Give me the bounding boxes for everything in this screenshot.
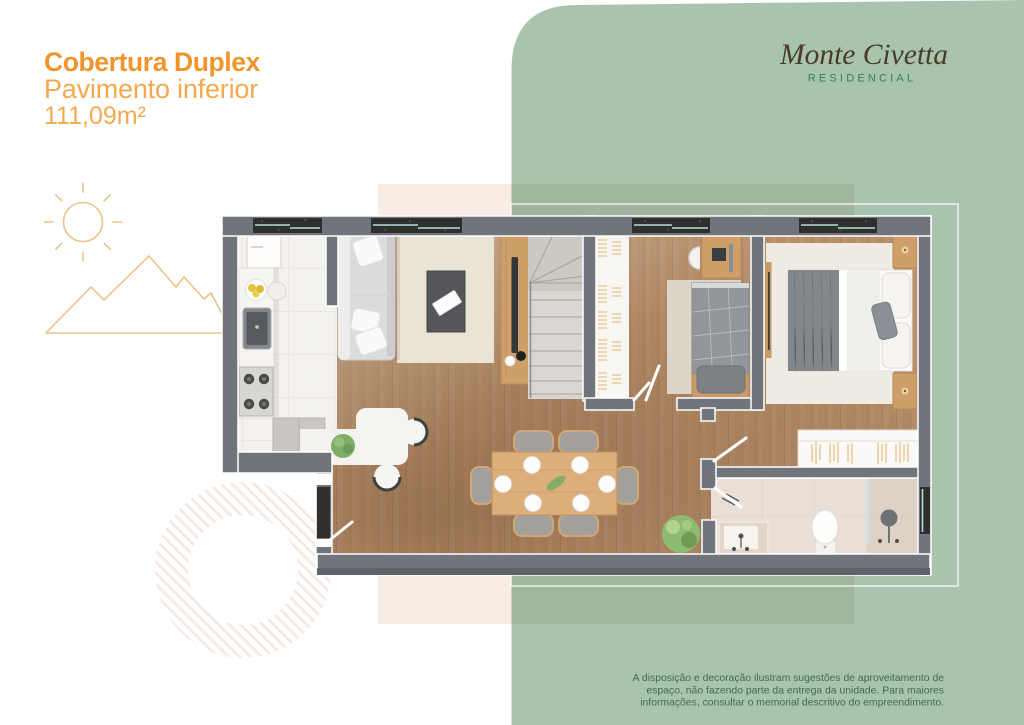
svg-text:Pavimento inferior: Pavimento inferior [44,74,258,104]
svg-text:Monte Civetta: Monte Civetta [779,39,948,71]
svg-text:A disposição e decoração ilust: A disposição e decoração ilustram sugest… [633,673,945,684]
svg-text:111,09m²: 111,09m² [44,102,146,130]
svg-text:RESIDENCIAL: RESIDENCIAL [808,73,917,85]
svg-text:espaço, não fazendo parte da e: espaço, não fazendo parte da entrega da … [647,685,945,696]
svg-text:informações, consultar o memor: informações, consultar o memorial descri… [640,698,944,709]
svg-text:Cobertura Duplex: Cobertura Duplex [44,47,261,77]
